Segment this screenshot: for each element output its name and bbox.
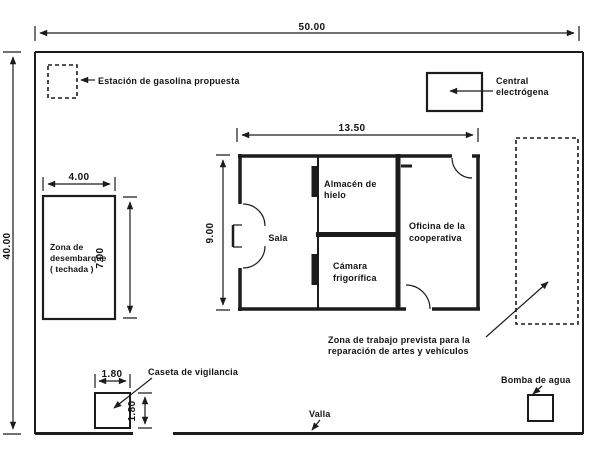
dim-guard-height-label: 1.80 — [127, 400, 138, 421]
plan-svg: 50.00 40.00 Estación de gasolina propues… — [0, 0, 600, 463]
room-almacen-label-1: Almacén de — [324, 179, 377, 189]
oficina-door-arc-top — [452, 158, 472, 178]
work-zone-label-2: reparación de artes y vehículos — [328, 346, 469, 356]
work-zone-label-1: Zona de trabajo prevista para la — [328, 335, 471, 345]
water-pump-label: Bomba de agua — [501, 375, 571, 385]
gas-station-box — [48, 65, 77, 98]
room-oficina-label-1: Oficina de la — [409, 221, 466, 231]
guard-house-box — [95, 393, 130, 428]
sala-door-arc-upper — [243, 204, 265, 226]
work-zone-leader-arrow — [486, 282, 548, 337]
oficina-door-arc-bottom — [406, 285, 430, 309]
power-plant-label-1: Central — [496, 76, 528, 86]
dim-unloading-height-label: 7.00 — [95, 247, 106, 268]
water-pump-box — [528, 395, 553, 421]
room-almacen-label-2: hielo — [324, 190, 346, 200]
unloading-zone-label-1: Zona de — [50, 242, 83, 252]
water-pump-leader-arrow — [533, 386, 542, 394]
power-plant-box — [427, 73, 482, 111]
site-plan-diagram: 50.00 40.00 Estación de gasolina propues… — [0, 0, 600, 463]
fence-leader-arrow — [312, 420, 320, 430]
almacen-door-leaf — [312, 166, 319, 197]
room-camara-label-2: frigorífica — [333, 273, 378, 283]
work-zone-box — [516, 138, 578, 324]
guard-house-label: Caseta de vigilancia — [148, 367, 239, 377]
gas-station-label: Estación de gasolina propuesta — [98, 76, 240, 86]
dim-building-width-label: 13.50 — [338, 123, 365, 134]
room-sala-label: Sala — [268, 233, 288, 243]
power-plant-label-2: electrógena — [496, 87, 550, 97]
fence-label: Valla — [309, 409, 331, 419]
unloading-zone-label-3: ( techada ) — [50, 264, 94, 274]
dim-site-height-label: 40.00 — [2, 232, 13, 259]
room-oficina-label-2: cooperativa — [409, 233, 463, 243]
dim-site-width-label: 50.00 — [298, 22, 325, 33]
room-camara-label-1: Cámara — [333, 261, 368, 271]
dim-guard-width-label: 1.80 — [101, 369, 122, 380]
building-wall-left-notch-ticks — [233, 225, 242, 247]
dim-unloading-width-label: 4.00 — [68, 172, 89, 183]
dim-building-height-label: 9.00 — [205, 222, 216, 243]
camara-door-leaf — [312, 254, 319, 285]
sala-door-arc-lower — [243, 246, 265, 268]
